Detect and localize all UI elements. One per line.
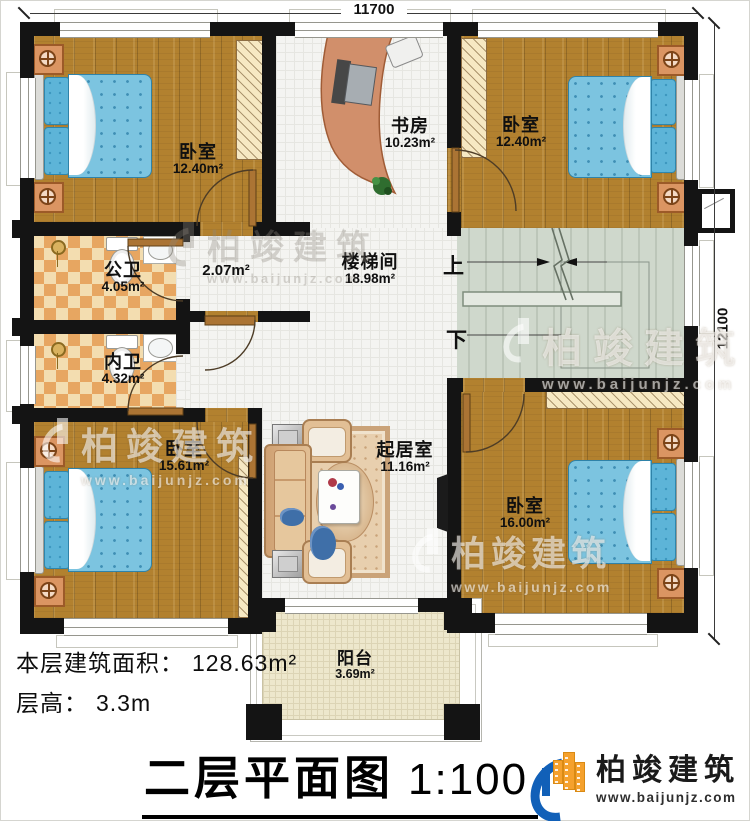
wall-segment: [447, 212, 461, 236]
side-table: [272, 550, 304, 578]
person-figure: [280, 508, 304, 526]
door-threshold: [205, 311, 258, 322]
window-sill: [472, 9, 666, 23]
wall-segment: [447, 22, 461, 148]
bed-pillow: [650, 463, 676, 511]
brand-name: 柏竣建筑: [596, 756, 740, 786]
nightstand: [33, 44, 64, 75]
floorplan-canvas: 卧室12.40m² 书房10.23m² 卧室12.40m² 公卫4.05m² 2…: [0, 0, 750, 821]
table-flowers: [328, 478, 337, 487]
storey-height-label: 层高：: [16, 690, 88, 716]
wall-segment: [525, 378, 698, 392]
window: [684, 246, 700, 326]
window: [64, 618, 228, 636]
door-threshold: [200, 222, 253, 236]
wardrobe: [236, 40, 264, 160]
bed-pillow: [650, 79, 676, 125]
window-sill: [54, 9, 218, 23]
floor-drain: [51, 342, 66, 357]
storey-height-value: 3.3m: [96, 690, 151, 716]
stairs-down-label: 下: [446, 324, 467, 354]
logo-bar: [542, 768, 550, 796]
dimension-right-value: 12100: [715, 300, 732, 358]
balcony-door: [285, 598, 418, 614]
floor-area-label: 本层建筑面积：: [16, 650, 184, 676]
door-threshold: [447, 148, 461, 212]
room-label-bedroom-tl: 卧室12.40m²: [173, 143, 223, 177]
floor-area-value: 128.63m²: [192, 650, 297, 676]
logo-bar: [553, 760, 563, 784]
dimension-top-value: 11700: [341, 1, 407, 18]
room-label-balcony: 阳台3.69m²: [335, 650, 375, 682]
floor-drain: [51, 240, 66, 255]
sink: [143, 334, 178, 362]
flue-shaft: [697, 189, 735, 233]
window-sill: [6, 72, 21, 186]
room-label-study: 书房10.23m²: [385, 117, 435, 151]
window: [20, 346, 36, 404]
floor-area-info: 本层建筑面积：128.63m²: [16, 644, 297, 678]
window: [684, 80, 700, 180]
wall-segment: [20, 320, 190, 334]
room-label-bedroom-br: 卧室16.00m²: [500, 497, 550, 531]
area-label-corridor: 2.07m²: [202, 263, 250, 279]
bed-pillow: [650, 513, 676, 561]
wall-segment: [248, 598, 276, 632]
bed: [34, 466, 152, 572]
logo-bar: [563, 752, 575, 790]
room-label-stairwell: 楼梯间18.98m²: [342, 253, 399, 287]
bed: [566, 74, 684, 178]
drawing-title: 二层平面图1:100: [142, 742, 538, 819]
door-threshold: [176, 354, 190, 412]
wall-segment: [276, 598, 285, 612]
brand-logo-icon: [533, 748, 587, 812]
door-threshold: [462, 378, 525, 392]
bed-pillow: [44, 471, 70, 519]
window: [684, 462, 700, 568]
room-label-bath-private: 内卫4.32m²: [102, 353, 145, 387]
window: [20, 78, 36, 178]
window: [478, 22, 658, 38]
wall-segment: [20, 222, 200, 236]
window-sill: [6, 340, 21, 412]
wall-pier: [12, 406, 20, 424]
room-label-living-room: 起居室11.16m²: [377, 441, 434, 475]
balcony-column: [444, 704, 480, 740]
wall-segment: [258, 311, 310, 322]
room-label-bedroom-tr: 卧室12.40m²: [496, 116, 546, 150]
logo-bar: [575, 762, 585, 792]
stairs-up-label: 上: [443, 250, 464, 280]
door-threshold: [176, 242, 190, 299]
bed-pillow: [44, 521, 70, 569]
person-figure: [310, 526, 336, 560]
sink: [143, 236, 178, 264]
window: [495, 613, 647, 635]
wall-segment: [447, 378, 463, 392]
coffee-table: [318, 470, 360, 524]
wall-segment: [253, 222, 310, 236]
wardrobe: [461, 38, 487, 158]
bed: [34, 72, 152, 178]
window-sill: [699, 456, 714, 576]
balcony-column: [246, 704, 282, 740]
wall-segment: [190, 311, 205, 322]
window: [60, 22, 210, 38]
nightstand: [34, 436, 65, 467]
dimension-tick: [18, 7, 31, 20]
table-flowers: [337, 483, 344, 490]
drawing-title-text: 二层平面图: [144, 752, 394, 804]
window-sill: [699, 240, 714, 334]
bed-pillow: [44, 127, 70, 175]
window: [295, 22, 443, 38]
wall-segment: [176, 222, 190, 242]
wall-segment: [262, 22, 276, 236]
nightstand: [34, 576, 65, 607]
nightstand: [33, 182, 64, 213]
table-flowers: [330, 504, 336, 510]
brand-site: www.baijunjz.com: [596, 790, 740, 805]
brand-logo-block: 柏竣建筑 www.baijunjz.com: [533, 748, 740, 812]
window-sill: [6, 462, 21, 580]
wall-segment: [418, 598, 446, 612]
staircase-drawing: [457, 228, 684, 388]
room-label-bedroom-bl: 卧室15.61m²: [159, 440, 209, 474]
wall-pier: [12, 318, 20, 336]
wall-segment: [447, 392, 461, 613]
window: [20, 468, 36, 572]
bed-pillow: [650, 127, 676, 173]
wall-segment: [20, 408, 205, 422]
wall-pier: [12, 220, 20, 238]
bed: [566, 458, 684, 564]
bed-pillow: [44, 77, 70, 125]
computer-monitor: [331, 59, 377, 108]
room-label-bath-public: 公卫4.05m²: [102, 261, 145, 295]
window-sill: [699, 74, 714, 188]
storey-height-info: 层高：3.3m: [16, 684, 151, 718]
drawing-scale: 1:100: [408, 755, 528, 804]
staircase: [457, 228, 684, 388]
window-sill: [488, 634, 658, 647]
tv: [437, 474, 448, 532]
